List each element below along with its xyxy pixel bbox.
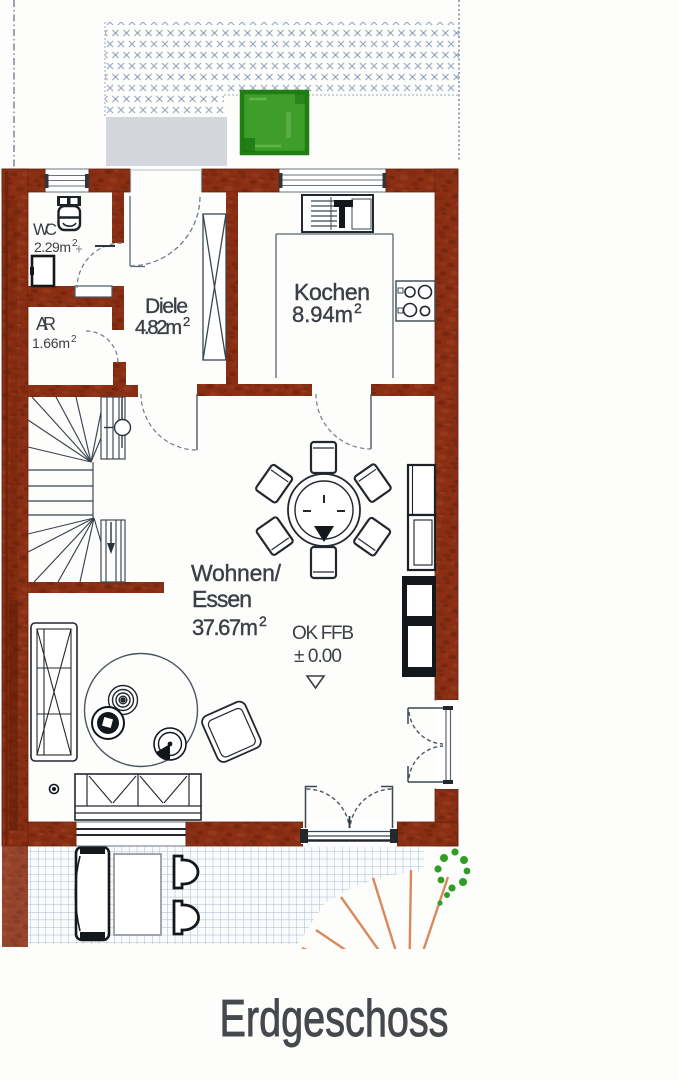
svg-text:2.29m: 2.29m [34, 239, 71, 255]
svg-text:2: 2 [259, 613, 267, 629]
svg-text:4.82m: 4.82m [135, 317, 182, 339]
svg-text:2: 2 [72, 238, 78, 249]
svg-text:37.67m: 37.67m [192, 615, 258, 640]
svg-text:2: 2 [71, 334, 77, 345]
svg-text:OK FFB: OK FFB [292, 623, 354, 644]
svg-text:1.66m: 1.66m [32, 335, 70, 351]
svg-text:2: 2 [183, 314, 190, 329]
svg-text:AR: AR [36, 314, 56, 334]
svg-text:Diele: Diele [145, 295, 188, 318]
svg-text:2: 2 [354, 300, 362, 316]
svg-text:WC: WC [33, 220, 57, 239]
svg-text:Erdgeschoss: Erdgeschoss [220, 990, 449, 1048]
svg-text:± 0.00: ± 0.00 [294, 646, 342, 667]
svg-text:8.94m: 8.94m [292, 302, 353, 327]
svg-text:Essen: Essen [192, 586, 252, 612]
svg-text:Wohnen/: Wohnen/ [191, 560, 282, 586]
